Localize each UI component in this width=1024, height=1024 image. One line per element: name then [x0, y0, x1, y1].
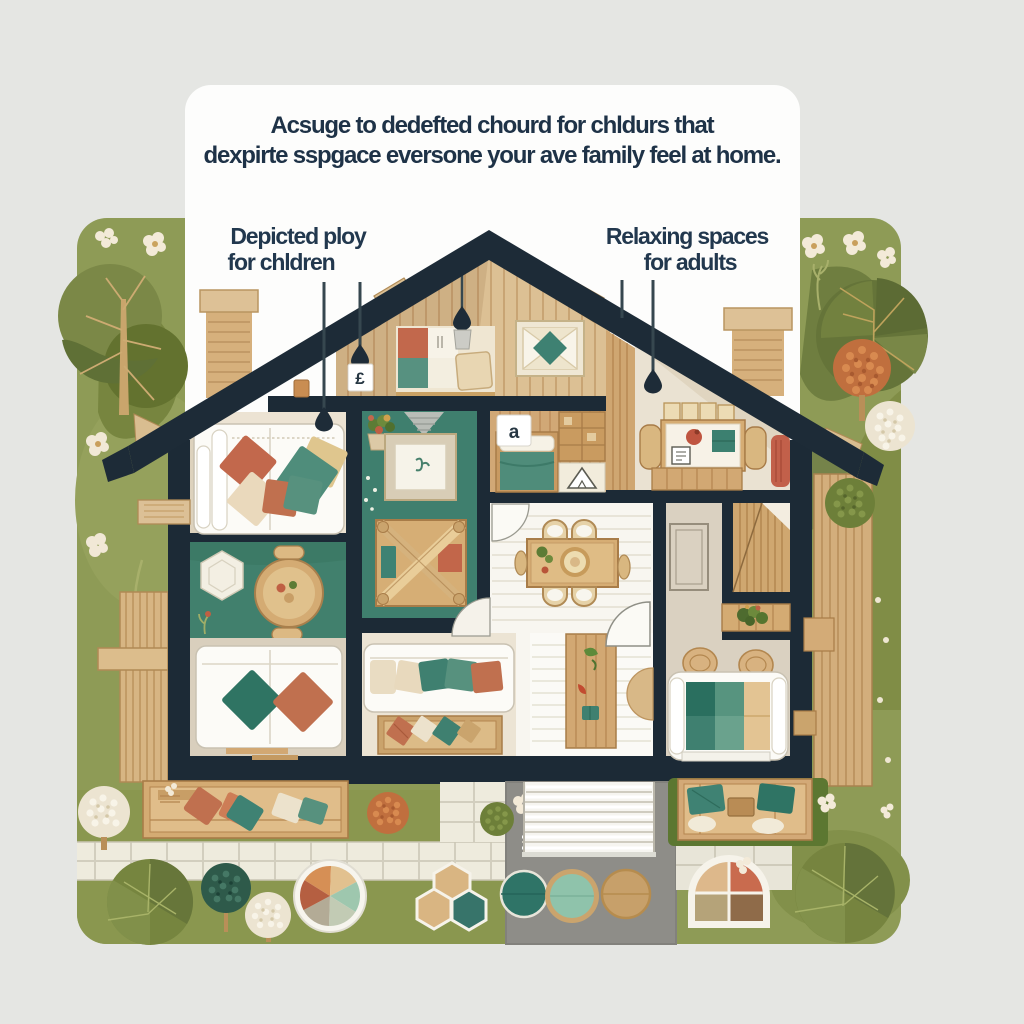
svg-text:dexpirte sspgace eversone your: dexpirte sspgace eversone your ave famil…: [204, 142, 781, 169]
svg-text:for chldren: for chldren: [228, 249, 335, 275]
svg-text:Acsuge to dedefted chourd for: Acsuge to dedefted chourd for chldurs th…: [271, 112, 715, 139]
svg-text:for adults: for adults: [644, 249, 737, 275]
svg-text:£: £: [355, 369, 365, 388]
svg-text:Depicted ploy: Depicted ploy: [230, 223, 367, 249]
svg-text:a: a: [509, 422, 520, 443]
svg-text:Relaxing spaces: Relaxing spaces: [606, 223, 769, 249]
